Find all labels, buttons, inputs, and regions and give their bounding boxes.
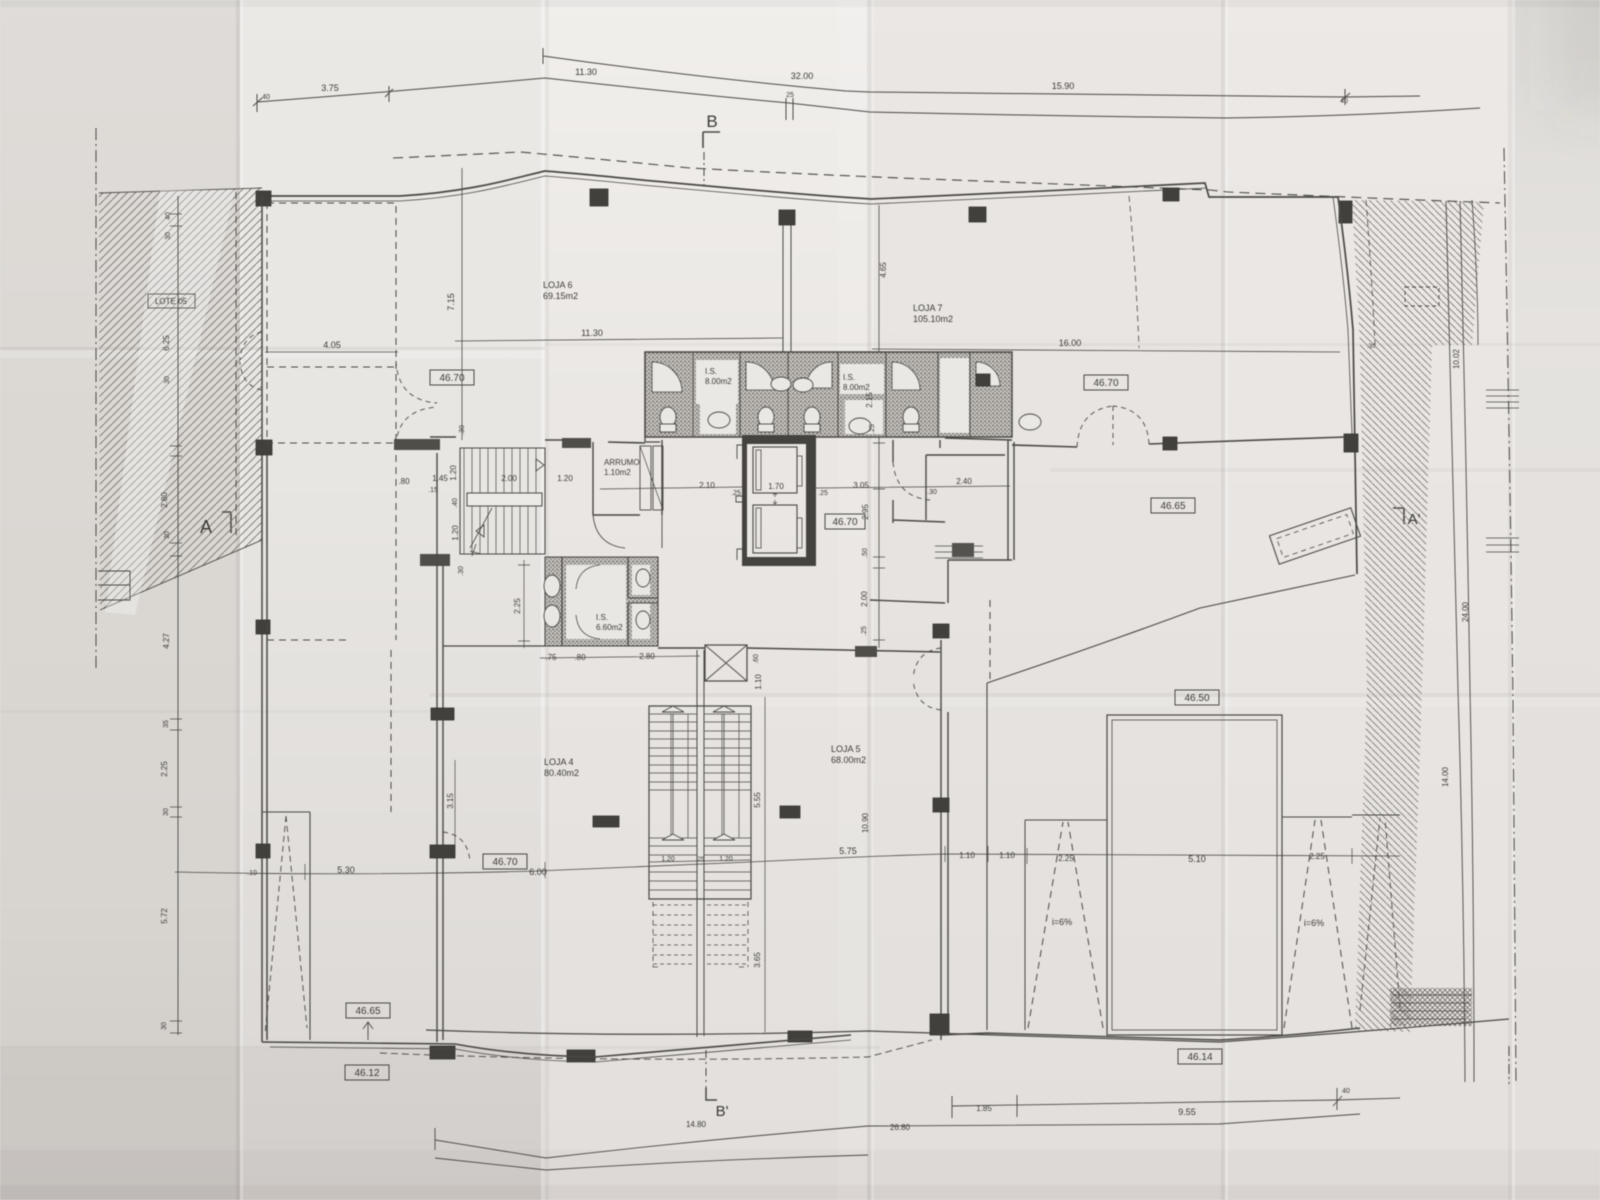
svg-text:2.00: 2.00: [860, 591, 869, 607]
svg-text:1.10: 1.10: [999, 851, 1015, 860]
svg-text:4.27: 4.27: [162, 633, 171, 649]
svg-text:1.20: 1.20: [719, 856, 733, 863]
svg-text:2.15: 2.15: [865, 392, 874, 408]
svg-text:1.10: 1.10: [959, 851, 975, 860]
svg-text:.25: .25: [861, 626, 868, 636]
svg-text:4.65: 4.65: [879, 262, 888, 278]
svg-text:.50: .50: [862, 548, 869, 558]
svg-text:30: 30: [164, 531, 171, 539]
svg-text:46.14: 46.14: [1187, 1052, 1212, 1063]
svg-text:.30: .30: [459, 425, 466, 435]
svg-text:26.80: 26.80: [890, 1123, 911, 1132]
svg-text:40: 40: [165, 212, 172, 220]
svg-text:14.00: 14.00: [1441, 766, 1450, 787]
svg-text:10.02: 10.02: [1452, 348, 1461, 369]
svg-text:7.15: 7.15: [446, 293, 456, 311]
svg-text:35: 35: [163, 720, 170, 728]
svg-text:2.25: 2.25: [513, 598, 522, 614]
svg-text:11.30: 11.30: [575, 67, 597, 77]
svg-text:3.65: 3.65: [753, 952, 762, 968]
svg-text:30: 30: [163, 808, 170, 816]
svg-text:46.70: 46.70: [439, 373, 464, 384]
svg-text:4.05: 4.05: [323, 340, 341, 350]
svg-text:LOTE 05: LOTE 05: [155, 297, 188, 306]
svg-text:2.00: 2.00: [501, 474, 517, 483]
svg-text:5.10: 5.10: [1188, 854, 1206, 864]
svg-text:46.12: 46.12: [354, 1068, 379, 1079]
svg-text:46.50: 46.50: [1184, 693, 1209, 704]
svg-text:5.75: 5.75: [839, 846, 857, 856]
svg-text:46.70: 46.70: [1093, 378, 1118, 389]
svg-text:1.10m2: 1.10m2: [604, 468, 631, 477]
svg-text:16.00: 16.00: [1059, 338, 1082, 348]
svg-text:.25: .25: [696, 857, 705, 863]
svg-text:80.40m2: 80.40m2: [544, 768, 579, 778]
svg-text:32.00: 32.00: [791, 71, 814, 81]
svg-text:.30: .30: [1367, 344, 1376, 350]
svg-text:6.25: 6.25: [162, 335, 171, 351]
svg-text:5.55: 5.55: [753, 792, 762, 808]
svg-text:.30: .30: [927, 489, 937, 496]
svg-text:2.10: 2.10: [699, 481, 715, 490]
svg-text:I.S.: I.S.: [596, 613, 608, 622]
svg-text:i=6%: i=6%: [1052, 917, 1072, 927]
svg-text:1.45: 1.45: [432, 474, 448, 483]
svg-text:46.65: 46.65: [1160, 501, 1185, 512]
svg-text:1.70: 1.70: [768, 482, 784, 491]
svg-text:2.80: 2.80: [160, 492, 169, 508]
svg-text:2.80: 2.80: [639, 652, 655, 661]
svg-text:LOJA 4: LOJA 4: [544, 757, 574, 767]
svg-text:10.90: 10.90: [861, 812, 870, 833]
svg-text:3.05: 3.05: [853, 481, 869, 490]
svg-text:30: 30: [165, 232, 172, 240]
svg-text:68.00m2: 68.00m2: [831, 755, 866, 765]
svg-text:.80: .80: [398, 477, 410, 486]
svg-text:I.S.: I.S.: [705, 367, 717, 376]
svg-text:ARRUMO: ARRUMO: [604, 458, 640, 467]
svg-text:1.20: 1.20: [661, 856, 675, 863]
svg-text:6.60m2: 6.60m2: [596, 623, 623, 632]
svg-text:2.95: 2.95: [861, 504, 870, 520]
svg-text:B': B': [716, 1103, 729, 1120]
svg-text:46.65: 46.65: [355, 1006, 380, 1017]
svg-text:.40: .40: [452, 498, 459, 508]
svg-text:LOJA 7: LOJA 7: [913, 303, 943, 313]
svg-text:B: B: [706, 112, 717, 131]
svg-text:40: 40: [1340, 98, 1348, 105]
svg-text:1.85: 1.85: [976, 1104, 992, 1113]
svg-text:.80: .80: [574, 653, 586, 662]
svg-text:2.25: 2.25: [1309, 852, 1325, 861]
svg-text:8.00m2: 8.00m2: [705, 377, 732, 386]
svg-text:1.20: 1.20: [557, 474, 573, 483]
svg-text:A: A: [200, 517, 212, 537]
svg-text:14.80: 14.80: [686, 1120, 707, 1129]
svg-text:11.30: 11.30: [581, 328, 603, 338]
svg-text:.60: .60: [753, 654, 760, 664]
svg-text:6.00: 6.00: [529, 867, 547, 877]
svg-text:2.40: 2.40: [956, 477, 972, 486]
svg-text:I.S.: I.S.: [843, 373, 855, 382]
svg-text:40: 40: [262, 94, 270, 101]
svg-text:24.00: 24.00: [1461, 601, 1470, 622]
svg-text:105.10m2: 105.10m2: [913, 314, 953, 324]
svg-text:8.00m2: 8.00m2: [843, 383, 870, 392]
svg-text:5.30: 5.30: [337, 865, 355, 875]
svg-text:LOJA 5: LOJA 5: [831, 744, 861, 754]
svg-text:3.15: 3.15: [446, 793, 455, 809]
svg-text:9.55: 9.55: [1178, 1107, 1196, 1117]
svg-text:i=6%: i=6%: [1304, 918, 1324, 928]
svg-text:40: 40: [1342, 1088, 1350, 1095]
svg-text:1.20: 1.20: [449, 465, 458, 481]
svg-text:.25: .25: [731, 490, 741, 497]
svg-text:.15: .15: [428, 487, 438, 494]
svg-text:30: 30: [164, 376, 171, 384]
svg-text:2.25: 2.25: [1058, 854, 1074, 863]
svg-text:2.25: 2.25: [160, 761, 169, 777]
svg-text:46.70: 46.70: [832, 517, 857, 528]
svg-text:15.90: 15.90: [1052, 81, 1075, 91]
svg-text:.25: .25: [869, 424, 876, 434]
svg-text:.75: .75: [545, 653, 557, 662]
svg-text:.30: .30: [458, 566, 465, 576]
svg-text:1.10: 1.10: [754, 674, 763, 690]
svg-text:30: 30: [161, 1022, 168, 1030]
svg-text:.25: .25: [818, 490, 828, 497]
svg-text:46.70: 46.70: [492, 857, 517, 868]
svg-text:5.72: 5.72: [160, 908, 169, 924]
svg-text:A': A': [1408, 511, 1421, 528]
svg-text:.10: .10: [247, 870, 257, 877]
svg-text:1.20: 1.20: [451, 525, 460, 541]
svg-text:3.75: 3.75: [321, 83, 339, 93]
svg-text:LOJA 6: LOJA 6: [543, 280, 573, 290]
svg-text:25: 25: [786, 92, 794, 99]
svg-text:69.15m2: 69.15m2: [543, 291, 578, 301]
